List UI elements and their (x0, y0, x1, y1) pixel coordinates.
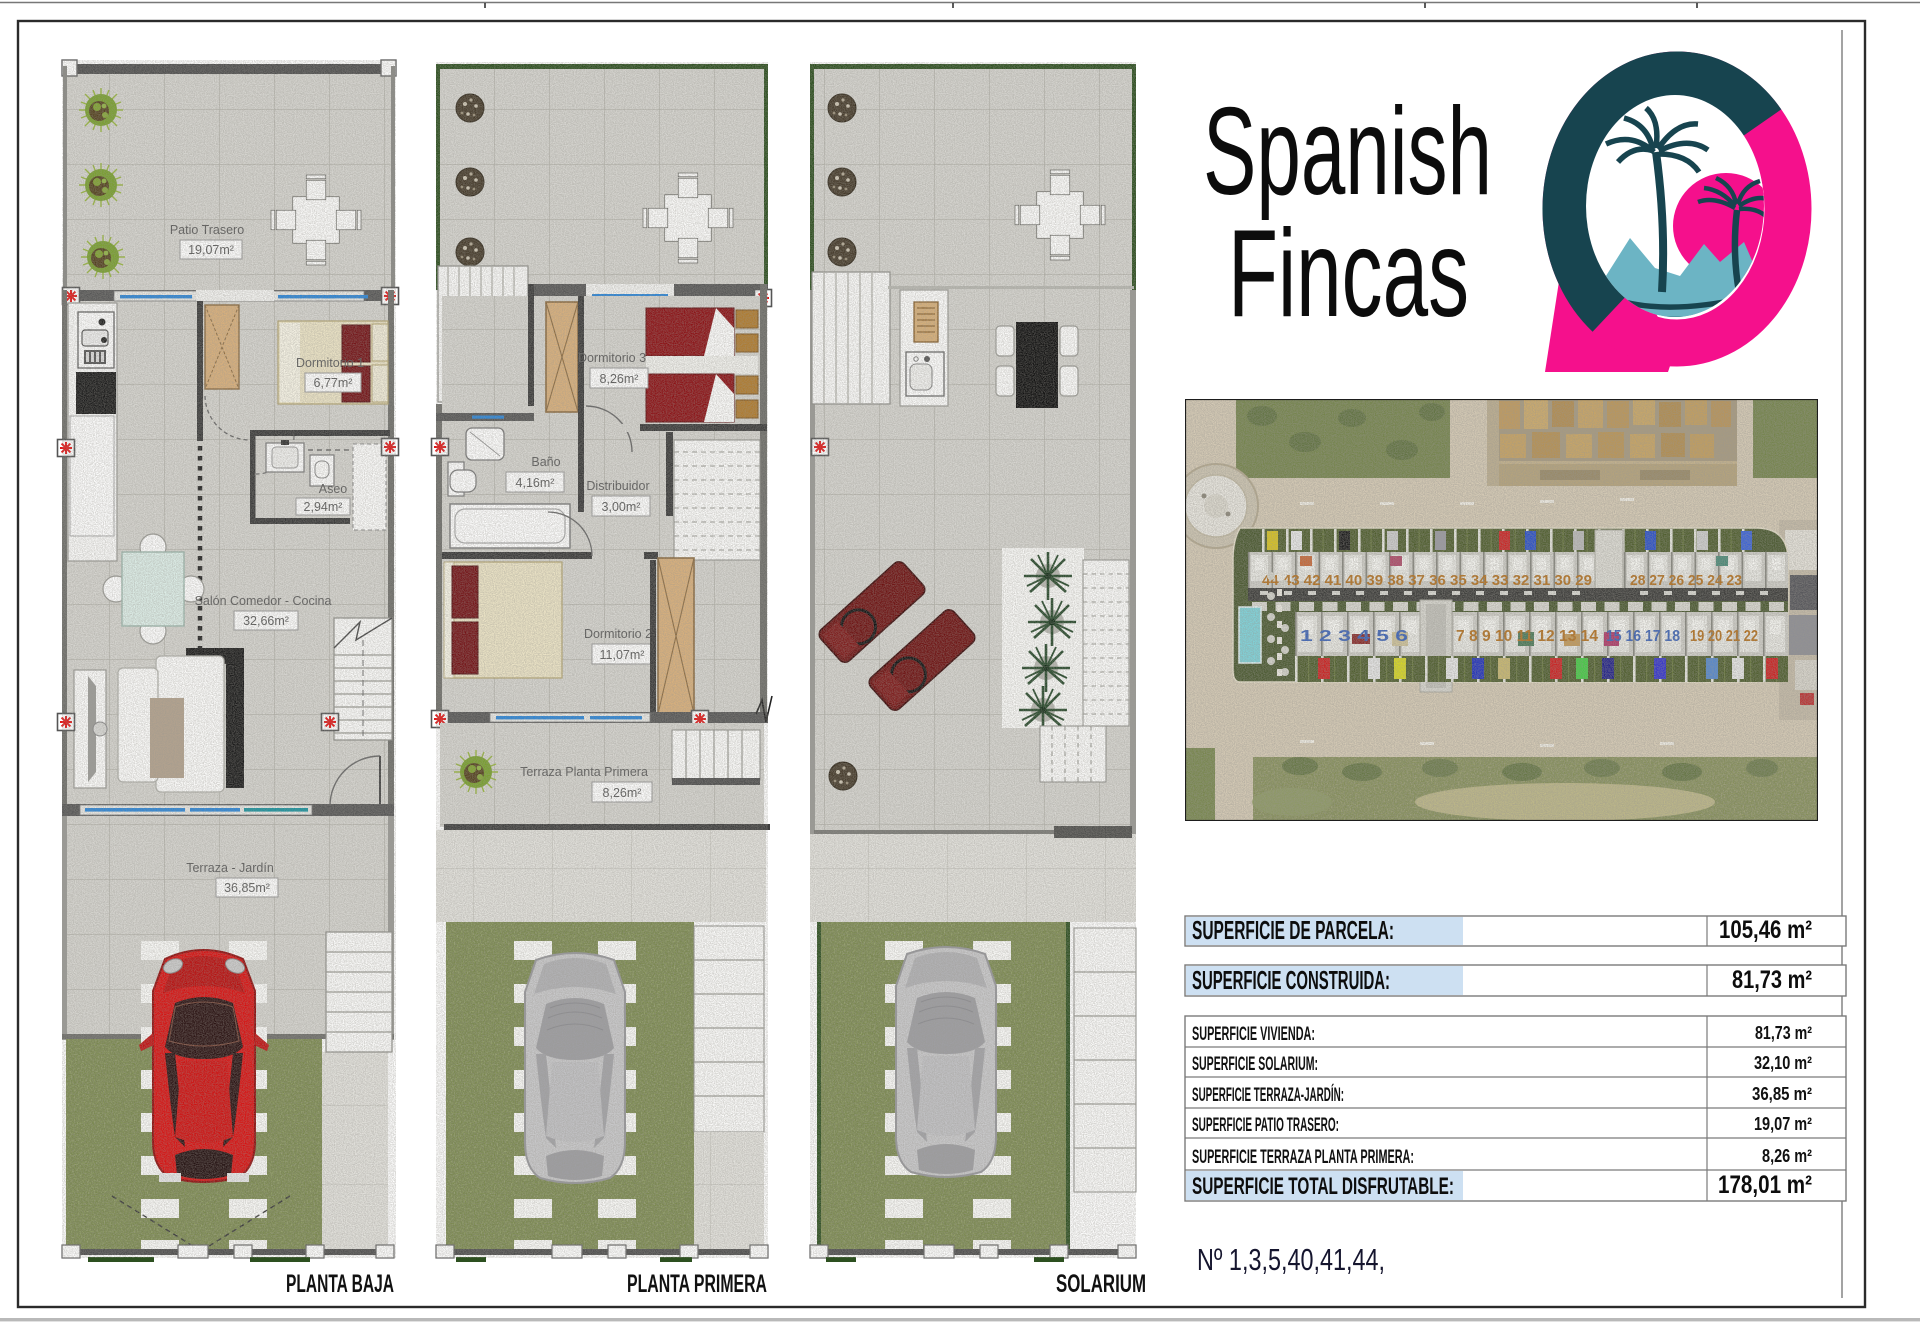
svg-text:Spanish: Spanish (1203, 83, 1492, 221)
svg-text:PLANTA BAJA: PLANTA BAJA (286, 1270, 394, 1298)
svg-text:81,73 m²: 81,73 m² (1755, 1023, 1812, 1043)
svg-text:SUPERFICIE VIVIENDA:: SUPERFICIE VIVIENDA: (1192, 1024, 1315, 1045)
svg-text:Nº 1,3,5,40,41,44,: Nº 1,3,5,40,41,44, (1197, 1242, 1385, 1277)
svg-text:178,01 m²: 178,01 m² (1718, 1171, 1812, 1199)
svg-text:SOLARIUM: SOLARIUM (1056, 1270, 1146, 1298)
svg-text:SUPERFICIE PATIO TRASERO:: SUPERFICIE PATIO TRASERO: (1192, 1115, 1339, 1136)
svg-text:SUPERFICIE CONSTRUIDA:: SUPERFICIE CONSTRUIDA: (1192, 965, 1390, 995)
svg-text:19,07 m²: 19,07 m² (1754, 1114, 1812, 1134)
svg-text:Fincas: Fincas (1228, 205, 1469, 343)
svg-text:PLANTA PRIMERA: PLANTA PRIMERA (627, 1270, 767, 1298)
svg-text:SUPERFICIE TERRAZA-JARDÍN:: SUPERFICIE TERRAZA-JARDÍN: (1192, 1084, 1344, 1106)
svg-text:32,10 m²: 32,10 m² (1754, 1053, 1812, 1073)
svg-text:SUPERFICIE TERRAZA PLANTA PRIM: SUPERFICIE TERRAZA PLANTA PRIMERA: (1192, 1147, 1414, 1168)
svg-text:81,73 m²: 81,73 m² (1732, 966, 1812, 994)
svg-text:SUPERFICIE DE PARCELA:: SUPERFICIE DE PARCELA: (1192, 915, 1394, 945)
svg-text:8,26 m²: 8,26 m² (1762, 1146, 1812, 1166)
svg-text:SUPERFICIE TOTAL DISFRUTABLE:: SUPERFICIE TOTAL DISFRUTABLE: (1192, 1173, 1454, 1200)
svg-text:SUPERFICIE SOLARIUM:: SUPERFICIE SOLARIUM: (1192, 1054, 1318, 1075)
svg-text:105,46 m²: 105,46 m² (1719, 916, 1812, 944)
svg-text:36,85 m²: 36,85 m² (1752, 1084, 1812, 1104)
